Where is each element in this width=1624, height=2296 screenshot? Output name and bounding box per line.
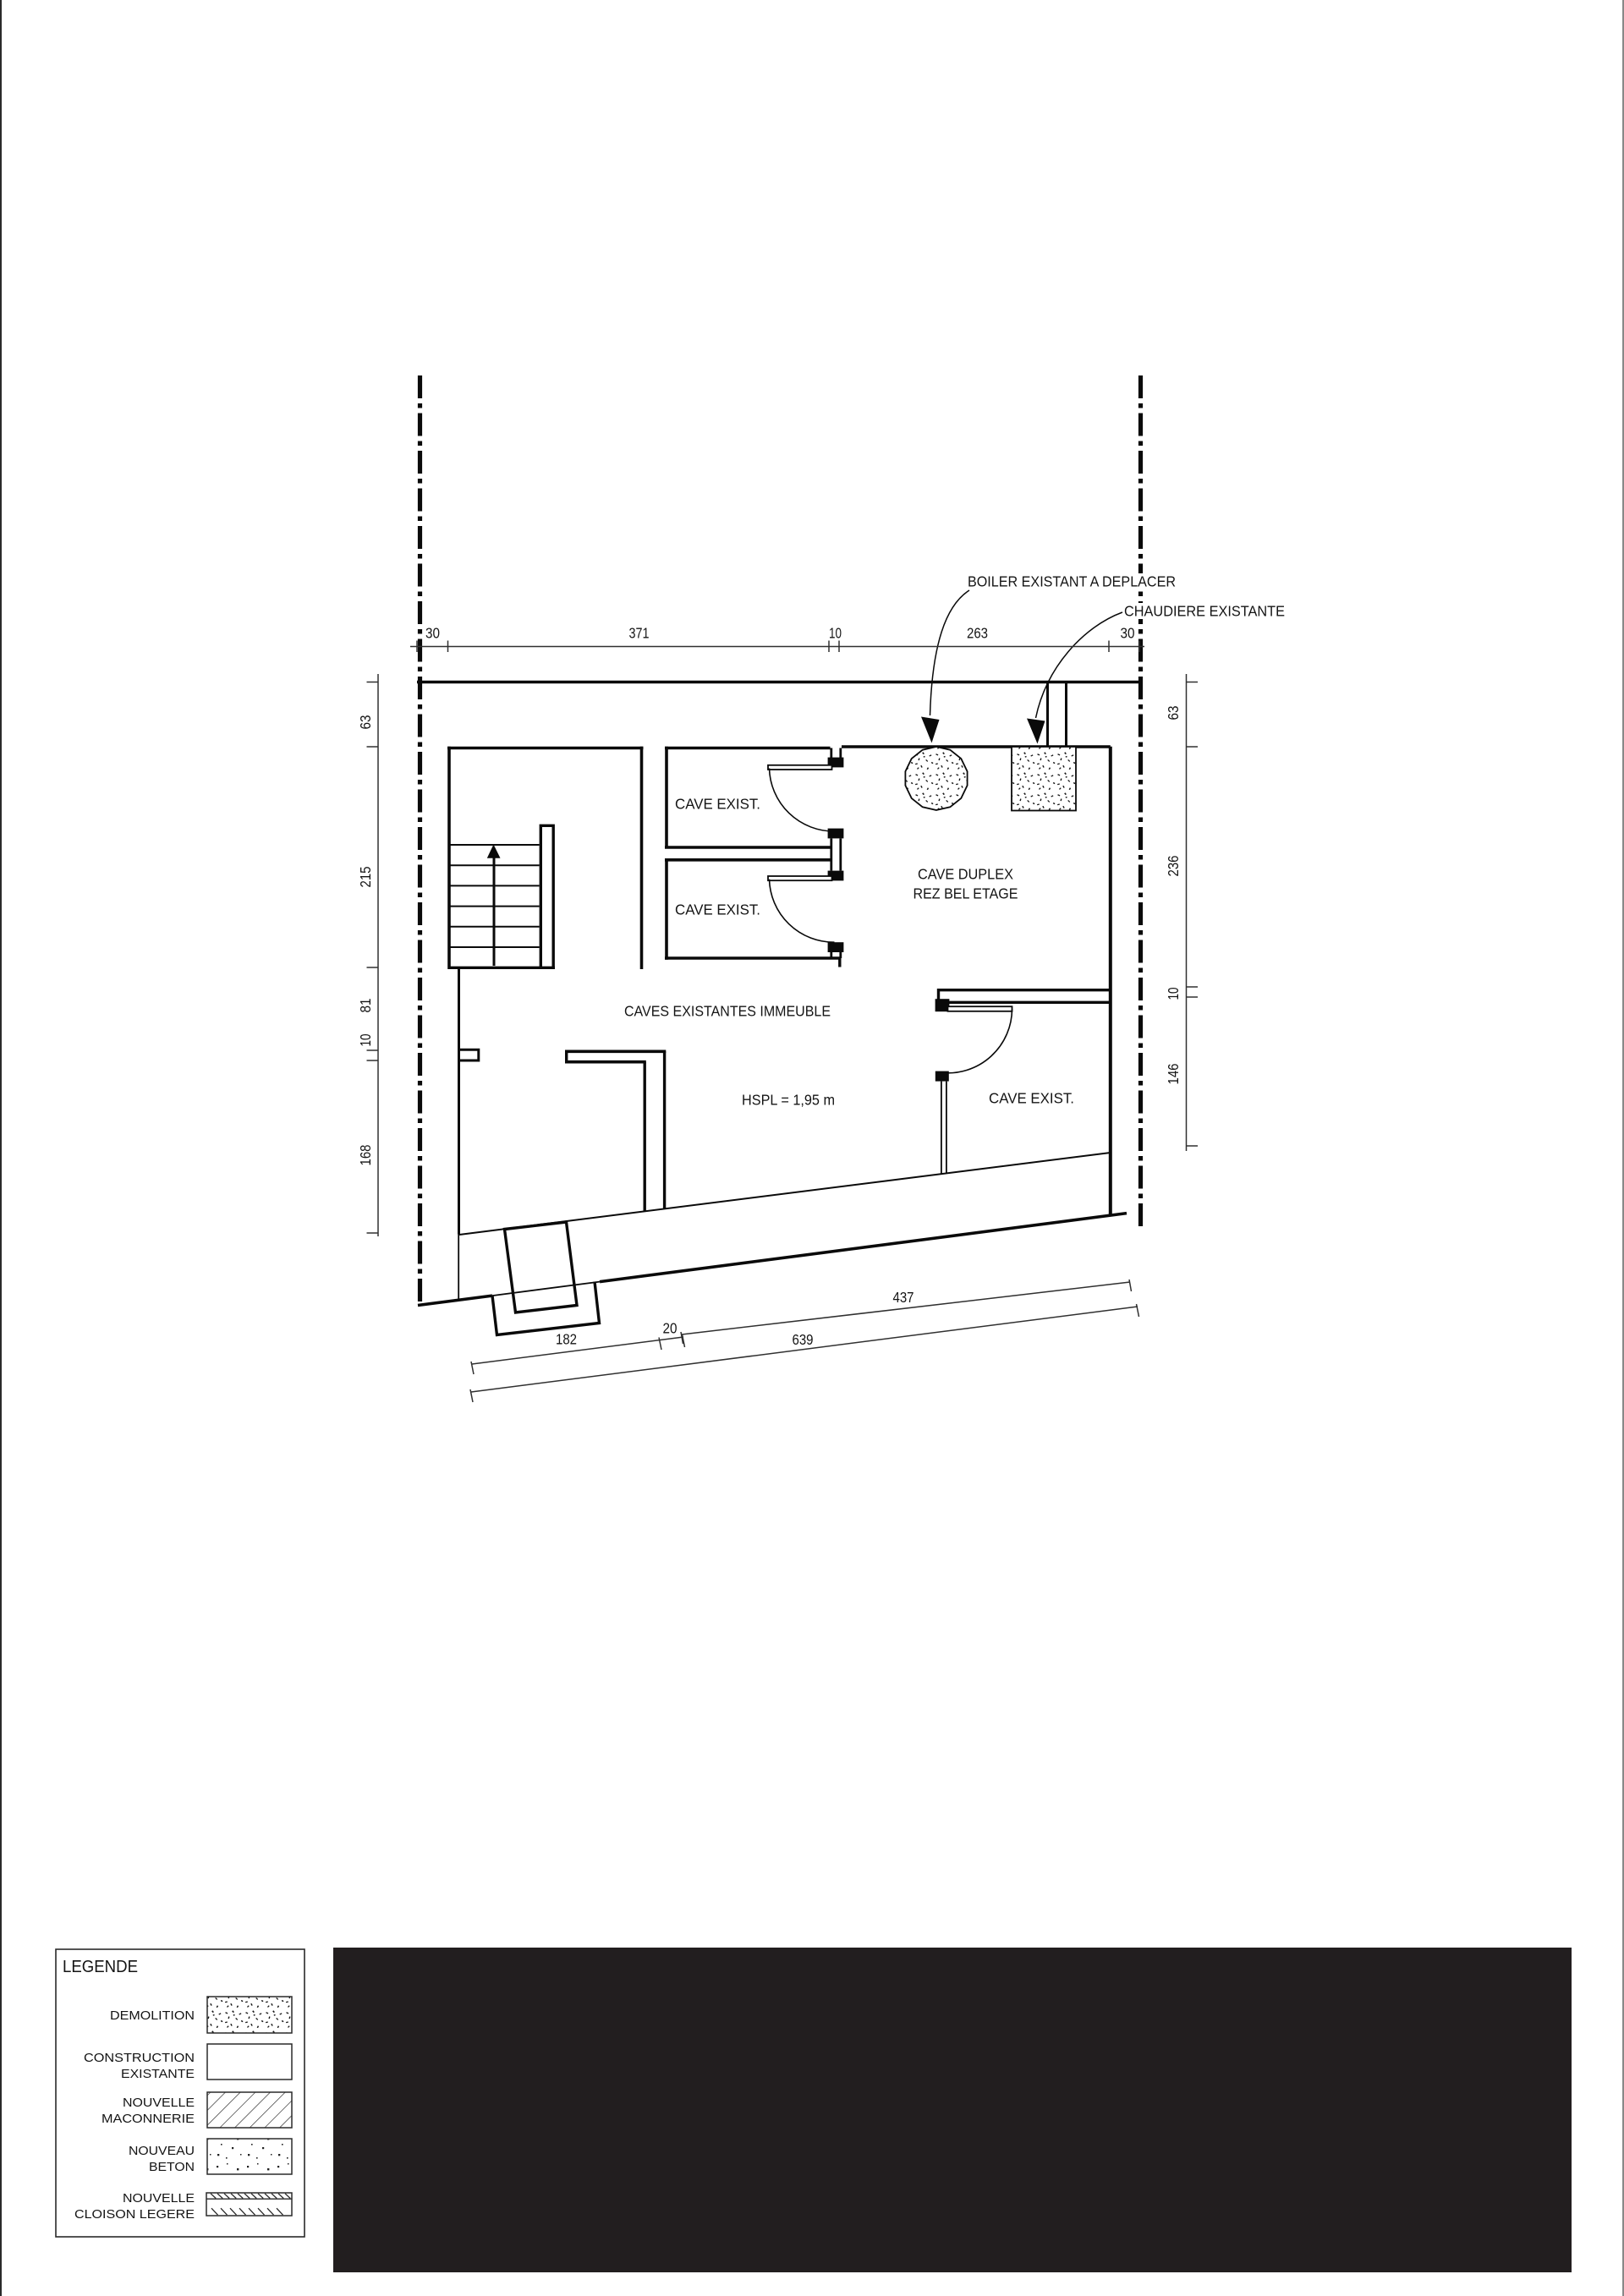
svg-text:371: 371 bbox=[629, 625, 650, 642]
svg-text:BETON: BETON bbox=[149, 2160, 195, 2174]
svg-text:81: 81 bbox=[357, 999, 374, 1013]
svg-text:236: 236 bbox=[1165, 856, 1182, 877]
svg-text:30: 30 bbox=[1121, 625, 1135, 642]
svg-text:CAVE EXIST.: CAVE EXIST. bbox=[675, 901, 760, 918]
svg-text:639: 639 bbox=[793, 1331, 814, 1348]
svg-text:DEMOLITION: DEMOLITION bbox=[110, 2008, 195, 2023]
svg-text:BOILER EXISTANT A DEPLACER: BOILER EXISTANT A DEPLACER bbox=[968, 573, 1176, 590]
svg-text:CAVE EXIST.: CAVE EXIST. bbox=[989, 1090, 1074, 1107]
svg-text:63: 63 bbox=[357, 715, 374, 730]
svg-text:168: 168 bbox=[357, 1145, 374, 1166]
svg-text:CHAUDIERE EXISTANTE: CHAUDIERE EXISTANTE bbox=[1124, 603, 1285, 620]
svg-text:20: 20 bbox=[663, 1320, 678, 1337]
svg-text:263: 263 bbox=[967, 625, 988, 642]
svg-text:LEGENDE: LEGENDE bbox=[63, 1958, 138, 1976]
svg-text:NOUVEAU: NOUVEAU bbox=[129, 2144, 195, 2158]
svg-text:146: 146 bbox=[1165, 1064, 1182, 1085]
svg-text:MACONNERIE: MACONNERIE bbox=[101, 2112, 195, 2126]
svg-text:10: 10 bbox=[1165, 987, 1182, 1000]
svg-text:EXISTANTE: EXISTANTE bbox=[121, 2067, 195, 2081]
svg-text:HSPL = 1,95 m: HSPL = 1,95 m bbox=[742, 1092, 835, 1109]
svg-text:10: 10 bbox=[829, 625, 842, 642]
svg-text:10: 10 bbox=[357, 1033, 374, 1046]
svg-text:CLOISON LEGERE: CLOISON LEGERE bbox=[74, 2207, 195, 2222]
svg-text:182: 182 bbox=[556, 1331, 577, 1348]
svg-text:437: 437 bbox=[893, 1289, 914, 1306]
svg-text:30: 30 bbox=[425, 625, 440, 642]
svg-text:CAVE DUPLEX: CAVE DUPLEX bbox=[918, 866, 1013, 883]
svg-text:CONSTRUCTION: CONSTRUCTION bbox=[84, 2051, 195, 2065]
svg-text:REZ BEL ETAGE: REZ BEL ETAGE bbox=[913, 885, 1018, 902]
svg-text:CAVES EXISTANTES IMMEUBLE: CAVES EXISTANTES IMMEUBLE bbox=[624, 1003, 831, 1020]
svg-text:63: 63 bbox=[1165, 706, 1182, 721]
svg-text:CAVE EXIST.: CAVE EXIST. bbox=[675, 796, 760, 813]
svg-text:NOUVELLE: NOUVELLE bbox=[123, 2096, 195, 2110]
svg-text:NOUVELLE: NOUVELLE bbox=[123, 2191, 195, 2206]
svg-text:215: 215 bbox=[357, 867, 374, 888]
